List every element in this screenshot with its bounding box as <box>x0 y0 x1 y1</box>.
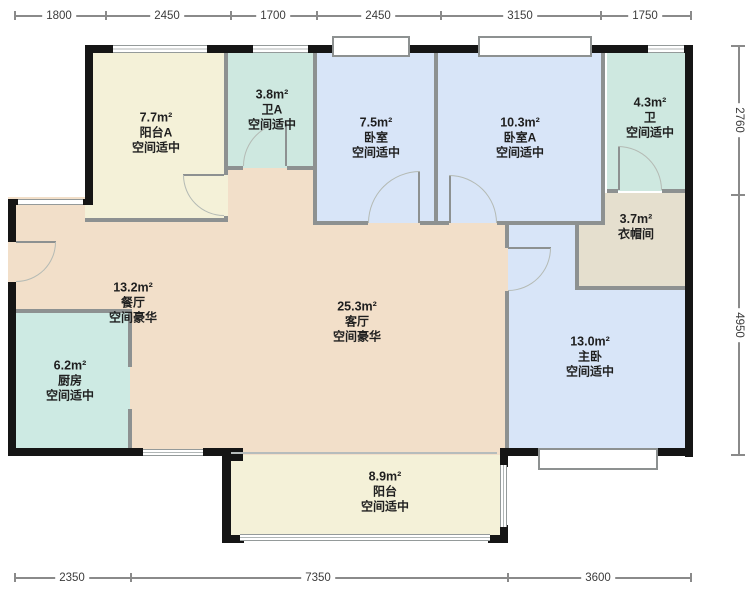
dimension-tick <box>230 11 232 20</box>
room-name: 阳台A <box>132 126 180 141</box>
wall-bedrooms-bottom-3 <box>497 221 603 225</box>
dimension-tick <box>731 454 745 456</box>
wall-cloakroom-bottom <box>578 286 692 290</box>
dim-label-top-1: 1800 <box>42 10 76 22</box>
dim-label-bottom-2: 7350 <box>301 572 335 584</box>
dimension-tick <box>731 194 745 196</box>
room-grade: 空间豪华 <box>109 311 157 326</box>
room-grade: 空间适中 <box>361 500 409 515</box>
room-grade: 空间适中 <box>46 389 94 404</box>
room-grade: 空间适中 <box>566 365 614 380</box>
dim-label-bottom-1: 2350 <box>55 572 89 584</box>
dimension-strip-top: 1800 2450 1700 2450 3150 1750 <box>0 0 748 30</box>
room-label-bath: 4.3m² 卫 空间适中 <box>626 96 674 141</box>
room-name: 衣帽间 <box>618 227 654 242</box>
outer-wall-top-5 <box>592 45 648 53</box>
wall-bedrooms-bottom-1 <box>313 221 368 225</box>
room-area: 3.8m² <box>248 88 296 103</box>
dimension-tick <box>731 45 745 47</box>
outer-wall-balconyA-left <box>85 45 93 201</box>
wall-kitchen-right-lower <box>128 409 132 452</box>
outer-wall-left-top-b <box>83 199 93 205</box>
dimension-line <box>14 15 691 17</box>
room-area: 10.3m² <box>496 116 544 131</box>
dimension-tick <box>14 11 16 20</box>
room-label-cloakroom: 3.7m² 衣帽间 <box>618 212 654 242</box>
room-name: 客厅 <box>333 315 381 330</box>
dim-label-right-2: 4950 <box>733 308 745 342</box>
window-bath-top <box>648 45 684 53</box>
dim-label-top-2: 2450 <box>150 10 184 22</box>
wall-balconyA-right-upper <box>224 45 228 175</box>
wall-master-left-upper <box>505 221 509 248</box>
window-bathA-top <box>253 45 308 53</box>
dimension-tick <box>507 573 509 582</box>
dim-label-right-1: 2760 <box>733 103 745 137</box>
outer-wall-top-4 <box>410 45 478 53</box>
wall-bathA-bottom-right <box>287 166 316 170</box>
outer-wall-top-3 <box>308 45 332 53</box>
dim-label-top-6: 1750 <box>628 10 662 22</box>
room-label-balcony: 8.9m² 阳台 空间适中 <box>361 470 409 515</box>
room-grade: 空间豪华 <box>333 330 381 345</box>
room-name: 餐厅 <box>109 296 157 311</box>
dimension-strip-bottom: 2350 7350 3600 <box>0 566 748 596</box>
room-area: 3.7m² <box>618 212 654 227</box>
outer-wall-balcony-left <box>222 455 231 543</box>
room-area: 13.2m² <box>109 281 157 296</box>
window-balcony-right <box>500 465 507 527</box>
room-name: 卧室 <box>352 131 400 146</box>
outer-wall-right <box>685 45 693 457</box>
room-label-bedroom-a: 10.3m² 卧室A 空间适中 <box>496 116 544 161</box>
wall-bedroomA-right <box>601 45 605 225</box>
room-grade: 空间适中 <box>626 126 674 141</box>
room-grade: 空间适中 <box>352 146 400 161</box>
dim-label-top-4: 2450 <box>361 10 395 22</box>
dim-label-top-5: 3150 <box>503 10 537 22</box>
wall-bathA-bottom-left <box>228 166 243 170</box>
dimension-tick <box>600 11 602 20</box>
room-area: 13.0m² <box>566 335 614 350</box>
room-grade: 空间适中 <box>248 118 296 133</box>
window-dining-left <box>18 199 83 205</box>
window-bedroomA-bay <box>478 36 592 57</box>
wall-master-left-lower <box>505 291 509 455</box>
dimension-tick <box>690 11 692 20</box>
room-grade: 空间适中 <box>132 141 180 156</box>
wall-bedroom-left <box>313 45 317 225</box>
outer-wall-left-upper <box>8 199 16 242</box>
window-master-bay <box>538 448 658 470</box>
room-label-bedroom: 7.5m² 卧室 空间适中 <box>352 116 400 161</box>
window-balcony-bottom <box>240 534 490 541</box>
wall-bedrooms-divider <box>434 45 438 225</box>
room-label-kitchen: 6.2m² 厨房 空间适中 <box>46 359 94 404</box>
outer-wall-top-2 <box>207 45 253 53</box>
room-area: 4.3m² <box>626 96 674 111</box>
room-area: 8.9m² <box>361 470 409 485</box>
room-area: 6.2m² <box>46 359 94 374</box>
room-grade: 空间适中 <box>496 146 544 161</box>
dimension-tick <box>105 11 107 20</box>
room-area: 7.5m² <box>352 116 400 131</box>
room-hall-fill <box>228 168 316 204</box>
floor-plan-image: 1800 2450 1700 2450 3150 1750 2350 7350 … <box>0 0 748 597</box>
room-name: 厨房 <box>46 374 94 389</box>
window-living-bottom <box>143 449 203 456</box>
wall-bedrooms-bottom-2 <box>420 221 449 225</box>
outer-wall-bottom-left-1 <box>8 448 143 456</box>
window-bedroom-bay <box>332 36 410 57</box>
dim-label-bottom-3: 3600 <box>581 572 615 584</box>
room-label-living: 25.3m² 客厅 空间豪华 <box>333 300 381 345</box>
room-name: 阳台 <box>361 485 409 500</box>
outer-wall-balcony-rb-block <box>500 525 508 543</box>
dimension-tick <box>440 11 442 20</box>
window-balconyA-top <box>113 45 207 53</box>
dim-label-top-3: 1700 <box>256 10 290 22</box>
wall-balconyA-right-lower <box>224 216 228 222</box>
room-label-master: 13.0m² 主卧 空间适中 <box>566 335 614 380</box>
dimension-strip-right: 2760 4950 <box>715 0 748 597</box>
dimension-tick <box>130 573 132 582</box>
wall-bath-bottom-left <box>607 189 618 193</box>
room-label-balcony-a: 7.7m² 阳台A 空间适中 <box>132 111 180 156</box>
wall-balconyA-bottom <box>85 218 228 222</box>
wall-cloakroom-left <box>575 225 579 290</box>
room-label-dining: 13.2m² 餐厅 空间豪华 <box>109 281 157 326</box>
room-area: 25.3m² <box>333 300 381 315</box>
room-area: 7.7m² <box>132 111 180 126</box>
room-name: 卧室A <box>496 131 544 146</box>
room-name: 主卧 <box>566 350 614 365</box>
room-name: 卫 <box>626 111 674 126</box>
balcony-sliding-track <box>231 452 497 454</box>
room-name: 卫A <box>248 103 296 118</box>
dimension-tick <box>690 573 692 582</box>
outer-wall-left-lower <box>8 282 16 456</box>
dimension-tick <box>14 573 16 582</box>
outer-wall-bottom-right-2 <box>658 448 693 456</box>
room-label-bath-a: 3.8m² 卫A 空间适中 <box>248 88 296 133</box>
dimension-tick <box>316 11 318 20</box>
